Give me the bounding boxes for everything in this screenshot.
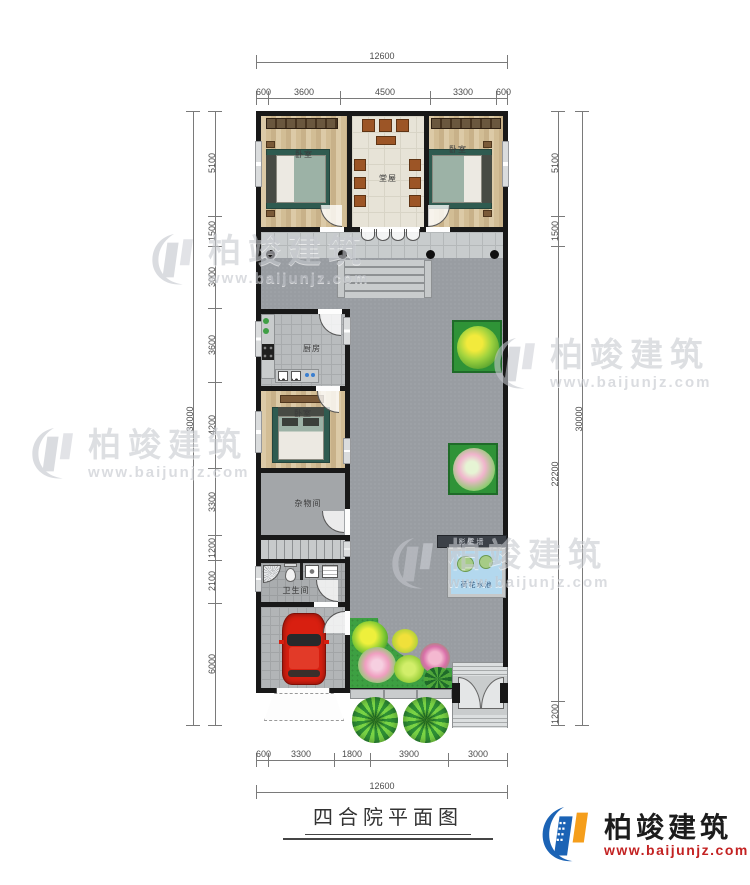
tree-icon [352, 697, 398, 743]
bed-headboard [482, 155, 492, 203]
window [343, 438, 351, 464]
dim-segment: 5100 [551, 111, 565, 216]
stairs [261, 540, 345, 559]
washer-icon [305, 565, 319, 578]
tree-planter [448, 443, 498, 495]
drawing-title-text: 四合院平面图 [305, 801, 471, 835]
brand-watermark-icon [28, 426, 80, 482]
plant-icon [358, 647, 396, 683]
bed-headboard [266, 155, 276, 203]
bath-divider [300, 563, 303, 580]
dim-segment: 2100 [208, 560, 222, 603]
tree-icon [457, 326, 499, 369]
dim-label: 12600 [256, 781, 508, 791]
column-icon [338, 250, 347, 259]
window [343, 317, 351, 345]
lotus-pond: 荷花水池 [448, 548, 505, 597]
door-opening [345, 611, 350, 635]
nightstand [483, 141, 492, 148]
burner-icon [278, 371, 288, 381]
floor-plan: 影壁墙 荷花水池 [256, 111, 508, 726]
window [343, 541, 351, 557]
bed [432, 155, 482, 203]
dim-label: 1200 [207, 538, 217, 558]
dim-label: 6000 [207, 654, 217, 674]
screen-wall: 影壁墙 [437, 535, 507, 548]
room-label: 卧室 [280, 149, 328, 160]
room-label: 卫生间 [266, 585, 326, 596]
door-opening [320, 227, 344, 232]
door-opening [314, 602, 338, 607]
dim-label: 1800 [334, 749, 370, 759]
wall [347, 116, 352, 227]
door-opening [345, 509, 350, 535]
dim-chain-left-segments: 5100 1500 3000 3600 4200 3300 1200 2100 … [208, 111, 222, 726]
chair [354, 195, 366, 207]
dim-label: 1200 [550, 704, 560, 724]
chair [354, 159, 366, 171]
nightstand [266, 141, 275, 148]
watermark-url: www.baijunjz.com [88, 465, 249, 480]
dim-segment: 3000 [448, 753, 508, 767]
room-label: 厨房 [288, 343, 336, 354]
chair [409, 195, 421, 207]
dim-segment: 6000 [208, 603, 222, 726]
dim-segment: 600 [496, 91, 508, 105]
dim-segment: 1800 [334, 753, 370, 767]
dim-label: 2100 [207, 571, 217, 591]
dim-label: 3000 [448, 749, 508, 759]
dim-segment: 30000 [575, 111, 589, 726]
lotus-leaf-icon [457, 556, 474, 572]
sink-dot-icon [305, 373, 309, 377]
column-icon [490, 250, 499, 259]
window [502, 141, 509, 187]
dim-segment: 600 [256, 753, 268, 767]
dim-segment: 3000 [208, 246, 222, 308]
dim-label: 3900 [370, 749, 448, 759]
dim-chain-right-overall: 30000 [575, 111, 589, 726]
window [255, 321, 262, 357]
dim-segment: 600 [256, 91, 268, 105]
door-swing [391, 229, 405, 241]
room-label: 堂屋 [364, 173, 412, 184]
dim-segment: 3300 [268, 753, 334, 767]
column-icon [266, 250, 275, 259]
dim-label: 30000 [574, 406, 584, 431]
room-label: 卧室 [434, 144, 482, 155]
dim-label: 3300 [207, 492, 217, 512]
window [255, 411, 262, 453]
door-opening [426, 227, 450, 232]
wall [452, 683, 460, 703]
wardrobe [266, 118, 338, 129]
wall [261, 535, 345, 540]
dim-label: 600 [256, 87, 268, 97]
dim-segment: 3600 [208, 308, 222, 382]
nightstand [483, 210, 492, 217]
pillow [282, 418, 298, 426]
dim-label: 3300 [268, 749, 334, 759]
door-swing [406, 229, 420, 241]
bed [276, 155, 326, 203]
nightstand [266, 210, 275, 217]
driveway-apron [264, 693, 344, 721]
dim-label: 5100 [550, 153, 560, 173]
dim-label: 1500 [550, 221, 560, 241]
wall [261, 559, 345, 563]
dim-chain-right-segments: 5100 1500 22200 1200 [551, 111, 565, 726]
dim-label: 3600 [207, 335, 217, 355]
courtyard-steps [337, 260, 432, 298]
chair [362, 119, 375, 132]
planter-boxes [350, 689, 452, 699]
car-icon [282, 613, 326, 685]
dim-segment: 1500 [208, 216, 222, 247]
dim-label: 3600 [268, 87, 340, 97]
stove-icon [262, 344, 274, 360]
wall [500, 683, 508, 703]
floor-plan-sheet: { "title": "四合院平面图", "brand": { "name": … [0, 0, 750, 885]
dim-label: 3000 [207, 267, 217, 287]
tree-icon [403, 697, 449, 743]
column-icon [426, 250, 435, 259]
dim-segment: 1200 [551, 701, 565, 726]
dim-segment: 3300 [208, 468, 222, 536]
dim-label: 22200 [550, 461, 560, 486]
pond-label: 荷花水池 [451, 580, 502, 590]
dim-label: 600 [496, 87, 508, 97]
wall [256, 111, 508, 116]
toilet-icon [285, 568, 296, 582]
room-label: 杂物间 [278, 498, 338, 509]
door-swing [361, 229, 375, 241]
tree-planter [452, 320, 502, 373]
brand-logo: 柏竣建筑 www.baijunjz.com [538, 802, 749, 868]
screen-wall-label: 影壁墙 [459, 537, 486, 547]
room-hall [352, 116, 424, 227]
window [255, 566, 262, 592]
brand-logo-icon [538, 802, 594, 868]
dim-segment: 1200 [208, 535, 222, 560]
chair [409, 159, 421, 171]
dim-segment: 30000 [186, 111, 200, 726]
dim-segment: 3900 [370, 753, 448, 767]
table [376, 136, 396, 145]
tree-icon [453, 448, 495, 491]
dim-chain-top-segments: 600 3600 4500 3300 600 [256, 91, 508, 105]
dim-segment: 12600 [256, 785, 508, 799]
dim-label: 3300 [430, 87, 496, 97]
plant-icon [263, 318, 269, 324]
toilet-tank [284, 563, 297, 567]
wardrobe [431, 118, 501, 129]
chair [379, 119, 392, 132]
drawing-title: 四合院平面图 [283, 801, 493, 840]
door-swing [376, 229, 390, 241]
brand-name: 柏竣建筑 [604, 813, 749, 844]
sink-dot-icon [311, 373, 315, 377]
wall [261, 468, 345, 473]
dim-chain-bottom-overall: 12600 [256, 785, 508, 799]
dim-segment: 4200 [208, 382, 222, 468]
watermark: 柏竣建筑 www.baijunjz.com [490, 336, 711, 392]
dim-segment: 4500 [340, 91, 430, 105]
plant-icon [263, 328, 269, 334]
dim-chain-top-overall: 12600 [256, 55, 508, 69]
gate-door-leaf [458, 677, 481, 709]
brand-url: www.baijunjz.com [604, 843, 749, 857]
lotus-leaf-icon [479, 555, 493, 569]
dim-label: 12600 [256, 51, 508, 61]
wall [345, 309, 350, 693]
dim-chain-left-overall: 30000 [186, 111, 200, 726]
chair [396, 119, 409, 132]
dim-label: 600 [256, 749, 268, 759]
burner-icon [291, 371, 301, 381]
dim-segment: 22200 [551, 246, 565, 701]
dim-segment: 5100 [208, 111, 222, 216]
dim-chain-bottom-segments: 600 3300 1800 3900 3000 [256, 753, 508, 767]
dim-segment: 3300 [430, 91, 496, 105]
pillow [303, 418, 319, 426]
dim-segment: 12600 [256, 55, 508, 69]
dim-label: 1500 [207, 221, 217, 241]
window [255, 141, 262, 187]
dim-label: 4200 [207, 415, 217, 435]
dim-label: 5100 [207, 153, 217, 173]
plant-icon [392, 629, 418, 653]
dim-label: 4500 [340, 87, 430, 97]
dim-segment: 1500 [551, 216, 565, 247]
room-label: 卧室 [279, 408, 327, 419]
dim-segment: 3600 [268, 91, 340, 105]
sink-icon [322, 565, 338, 578]
garage-door-opening [276, 688, 330, 693]
watermark-name: 柏竣建筑 [88, 428, 249, 461]
dim-label: 30000 [185, 406, 195, 431]
